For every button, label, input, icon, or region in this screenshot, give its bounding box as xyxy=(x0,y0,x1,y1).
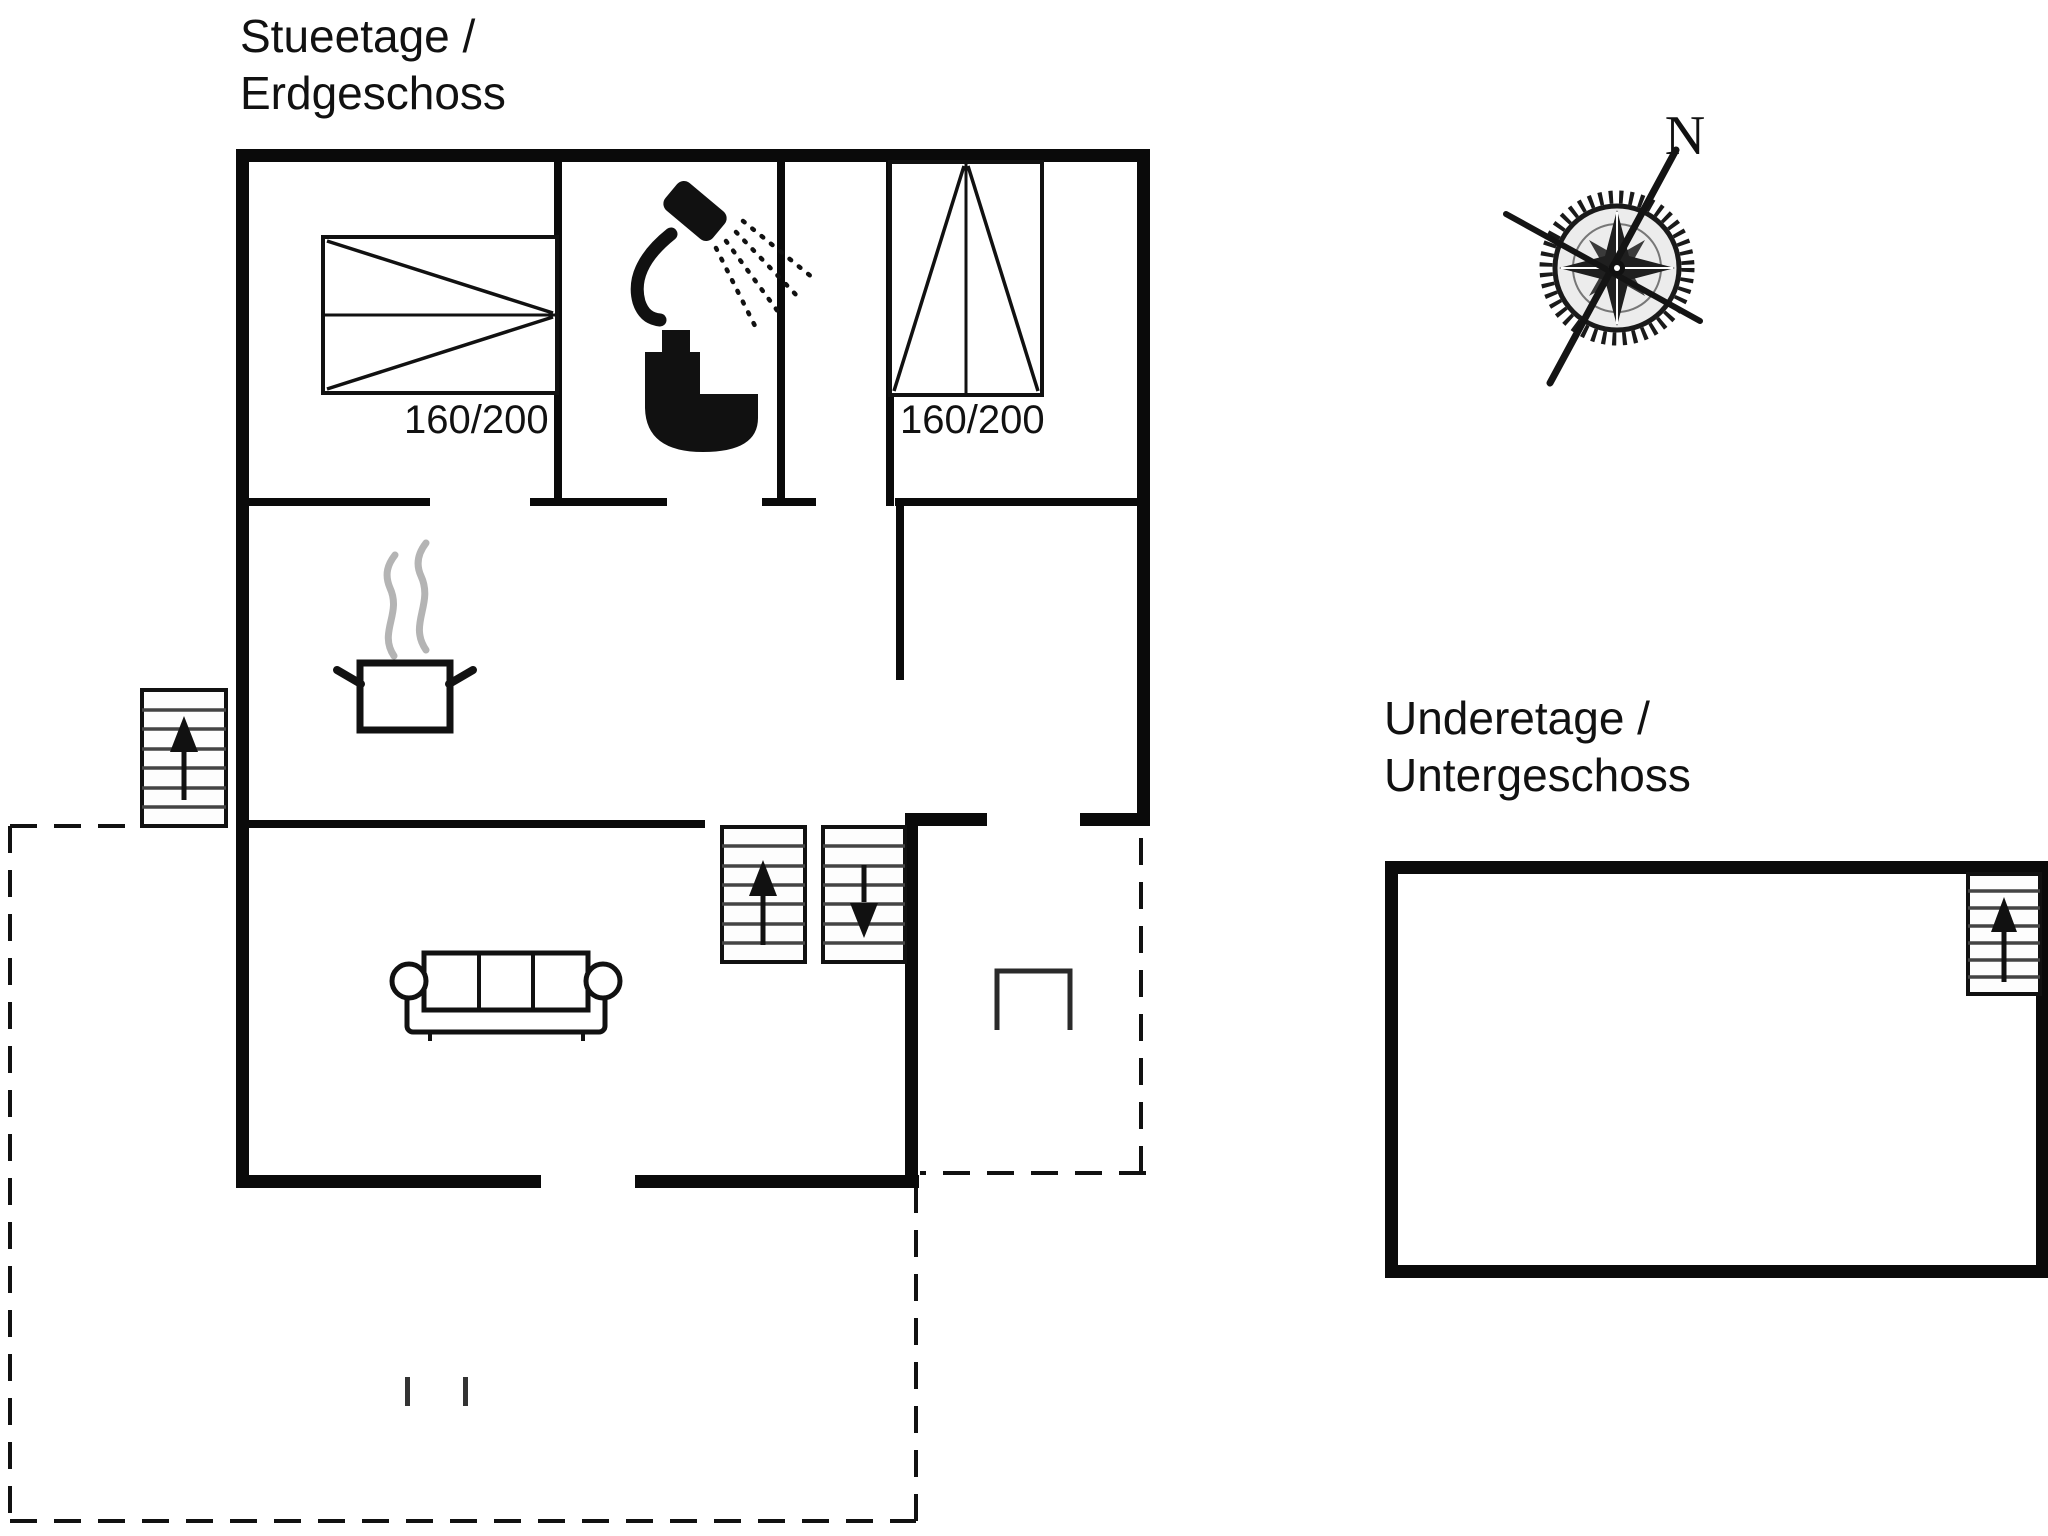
steam-icon xyxy=(387,555,395,656)
stairs-down-icon xyxy=(823,827,905,962)
stove-pot-icon xyxy=(337,543,473,730)
compass-rose-icon xyxy=(1506,150,1700,383)
exterior-stairs-icon xyxy=(142,690,226,826)
toilet-icon xyxy=(645,330,758,452)
floorplan-graphics xyxy=(0,0,2048,1536)
boundary-tick-marks xyxy=(405,1377,468,1406)
double-bed-icon xyxy=(323,237,557,393)
double-bed-vertical-icon xyxy=(890,162,1042,395)
stairs-up-icon xyxy=(722,827,805,962)
steam-icon xyxy=(418,543,426,650)
basement-stairs-up-icon xyxy=(1968,874,2040,994)
sofa-icon xyxy=(392,953,620,1041)
floorplan-canvas: Stueetage / Erdgeschoss Underetage / Unt… xyxy=(0,0,2048,1536)
shower-icon xyxy=(637,177,813,332)
terrace-bench-icon xyxy=(997,971,1070,1030)
terrace-dashed-outline xyxy=(10,826,1146,1521)
